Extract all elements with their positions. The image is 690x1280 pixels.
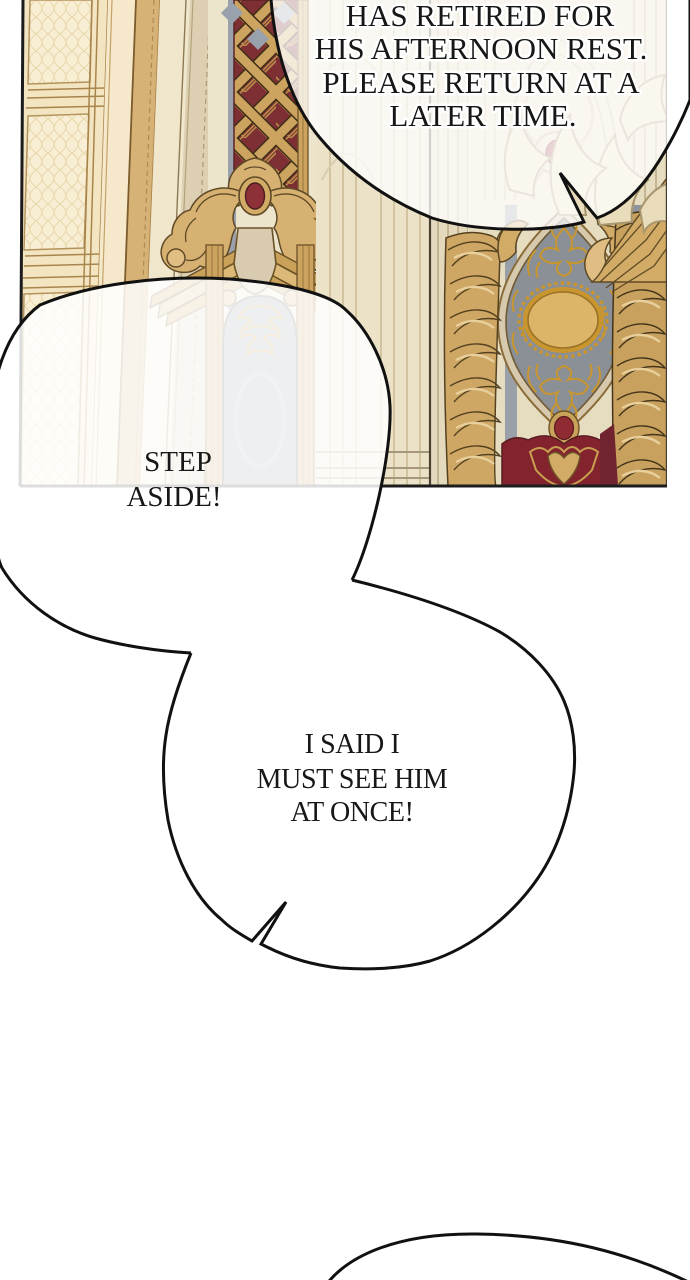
svg-text:I SAID I: I SAID I xyxy=(305,729,400,760)
svg-text:AT ONCE!: AT ONCE! xyxy=(290,797,413,828)
svg-text:HIS AFTERNOON REST.: HIS AFTERNOON REST. xyxy=(315,31,648,66)
svg-text:PLEASE RETURN AT A: PLEASE RETURN AT A xyxy=(322,65,640,100)
svg-text:MUST SEE HIM: MUST SEE HIM xyxy=(257,764,448,795)
svg-text:ASIDE!: ASIDE! xyxy=(126,481,221,513)
svg-text:LATER TIME.: LATER TIME. xyxy=(389,98,576,133)
svg-text:STEP: STEP xyxy=(144,446,212,478)
svg-text:HAS RETIRED FOR: HAS RETIRED FOR xyxy=(346,0,615,33)
